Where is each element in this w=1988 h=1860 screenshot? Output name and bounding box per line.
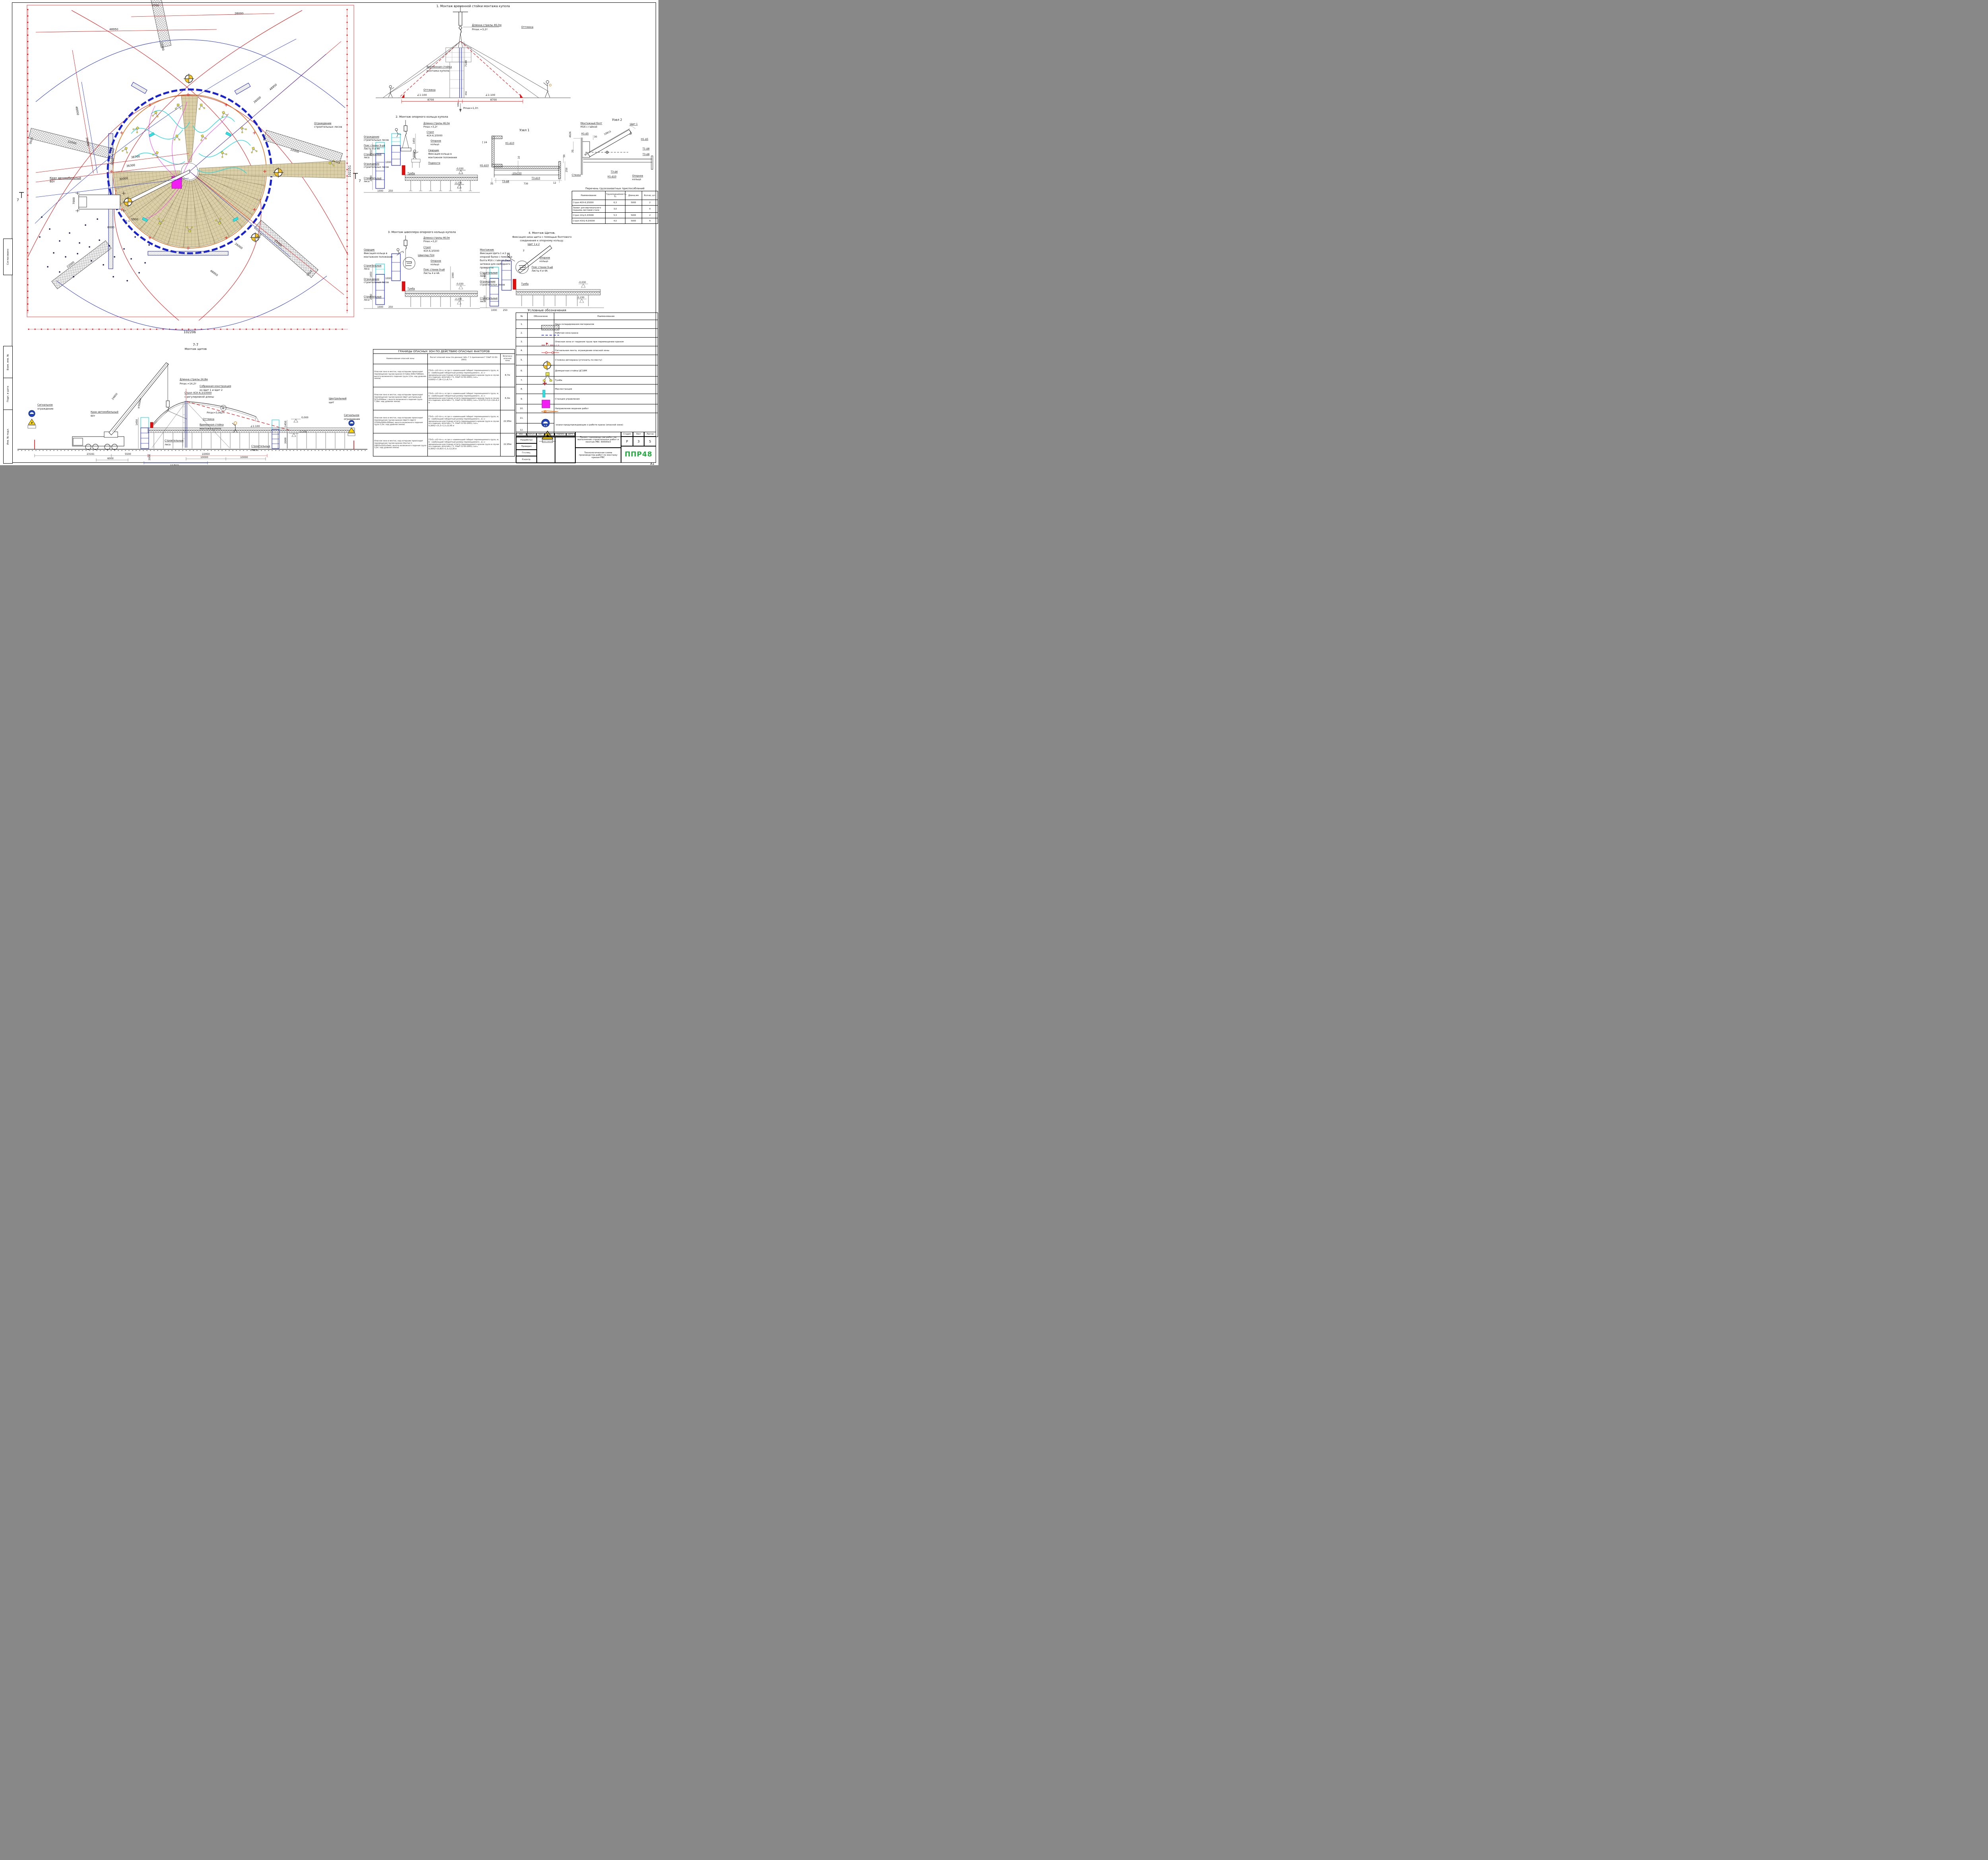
level-0030: -0,030	[456, 168, 464, 170]
weld-t3-8: Т3-Δ8	[502, 180, 509, 183]
company-logo: ППР48	[621, 446, 656, 463]
dim-48950: 48950	[109, 28, 118, 31]
welder-kneeling	[397, 249, 403, 255]
fence-label-2: строительных лесов	[480, 284, 505, 286]
boom-length-label: Длинна стрелы 24,8м	[180, 378, 208, 381]
detail-marker-2: 2	[523, 249, 524, 252]
lesa-label-2: леса	[364, 299, 369, 301]
legend-table: № Обозначене Наименование 1. Зона склади…	[516, 313, 658, 437]
stage1-title: 1. Монтаж временной стойки монтажа купол…	[437, 4, 510, 8]
poyas-label-1: Пояс стенки 9-ый	[423, 268, 445, 271]
signal-label-2: ограждение	[344, 418, 360, 421]
central-shield-2: щит	[329, 401, 334, 404]
legend-row: 2. Рабочая зона крана	[516, 329, 658, 338]
dim-50: 50	[563, 154, 566, 157]
rigging-table: Наименование Грузоподъемность, Тс Длина,…	[572, 191, 658, 224]
crane-work-zone-icon	[541, 333, 560, 337]
stamp-podp: Подп. и дата	[3, 378, 13, 410]
lesa-label-2: леса	[165, 443, 171, 446]
plan-view: 48950 26000 48950 26000 38700 36300 3000…	[12, 2, 362, 341]
fitter-label-5: затяжки для свободного	[480, 263, 511, 266]
legend-row: 5. Стоянка автокрана (уточнить по месту)	[516, 355, 658, 365]
tb-lists-val: 5	[644, 437, 656, 446]
col-qty: Кол-во, шт.	[642, 191, 658, 200]
dim-26000: 26000	[253, 96, 262, 104]
signal-tape-icon	[541, 351, 560, 355]
tumba-label: Тумба	[521, 283, 529, 285]
col-length: Длина,мм	[625, 191, 642, 200]
dim-26000: 26000	[234, 242, 243, 250]
rigging-table-title: Перечень грузозахватных приспособлений	[572, 187, 658, 190]
weld-n1-10: Н1-Δ10	[505, 142, 514, 145]
dim-1450: 1450	[136, 419, 138, 425]
uzel1-drawing	[492, 136, 565, 183]
dim-23191: 23191	[87, 453, 95, 456]
guy-label: Оттяжка	[521, 25, 533, 29]
crane-label: Кран автомобильный	[91, 410, 118, 414]
lesa-label-1: Строительные	[364, 153, 382, 156]
weld-n1-5: Н1-Δ5	[641, 138, 648, 141]
danger-table: Наименование опасной зоны Расчет опасной…	[373, 353, 515, 456]
dim-80: 80*	[584, 151, 589, 156]
ring-label-2: кольцо	[431, 264, 439, 266]
level-2230: -2,230	[454, 182, 462, 184]
dim-1000: 1000	[385, 278, 391, 280]
stage3-title: 3. Монтаж швеллера опорного кольца купол…	[388, 231, 456, 234]
fitter-label-3: опорной балке с помощью	[480, 256, 512, 258]
level-0: 0,000	[301, 416, 309, 419]
lesa-label-1: Строительные	[480, 272, 498, 274]
crane-truck	[72, 363, 169, 450]
section-mark-7: 7	[359, 179, 361, 183]
stage2-drawing	[364, 120, 480, 192]
sling-label-2: с регулировкой длины	[184, 395, 214, 398]
legend-title: Условные обозначения	[516, 309, 658, 312]
dim-6000: 6000	[107, 457, 114, 460]
section77-title: 7-7	[193, 343, 198, 347]
channel-label: Швеллер П24	[418, 254, 435, 257]
dim-250: 250	[565, 167, 568, 172]
stage2-labels: Длинна стрелы 46,0м Pmax.=3,2т Строп 4СК…	[364, 122, 464, 192]
welder-label-1: Сварщик	[364, 249, 375, 251]
assembled-label-2: из Щит 1 и Щит 2	[200, 389, 223, 392]
scaffold-left	[141, 417, 153, 448]
poyas-label-1: Пояс стенки 9-ый	[364, 144, 385, 147]
shield-label: Щит 1 и 2	[528, 243, 540, 246]
lesa-label-1: Строительные	[251, 445, 270, 448]
dim-1450: 1450	[413, 138, 415, 144]
lesa-label-2: леса	[364, 181, 369, 183]
mandatory-sign-icon	[541, 418, 550, 428]
legend-row: 4. Сигнальная лента, ограждение опасной …	[516, 346, 658, 355]
tb-ndok: №док.	[544, 433, 555, 436]
fence-label-2: строительных лесов	[314, 125, 342, 128]
stamp-inv: Инв. № подл.	[3, 410, 13, 464]
stage1-elevation: 1. Монтаж временной стойки монтажа купол…	[368, 3, 579, 115]
tumba-label: Тумба	[407, 173, 415, 175]
dim-1450: 1450	[484, 273, 486, 279]
dim-640: 640	[457, 102, 460, 107]
crane-stand-icon	[541, 360, 553, 371]
dim-102251: 102251	[348, 165, 351, 177]
uzel1-detail: Узел 1 [ 24 Н1-Δ10 10 50 250 -10x150 Т3-…	[480, 126, 569, 185]
slope-label: ∠1:100	[250, 425, 260, 428]
fitter-label-2: Фиксация Щита 1 и 2 на	[480, 252, 510, 255]
danger-col-value: Величина опасной зоны	[500, 354, 514, 364]
signal-label-1: Сигнальное	[344, 414, 359, 417]
ring-label-2: кольцо	[540, 260, 548, 263]
worker-left	[388, 85, 394, 97]
danger-row: Опасная зона в местах, над которыми прои…	[373, 433, 515, 456]
stage2-elevation: 2. Монтаж опорного кольца купола Длинна	[364, 115, 480, 194]
dim-3700: 3700	[152, 4, 159, 7]
danger-col-name: Наименование опасной зоны	[373, 354, 428, 364]
dim-48950: 48950	[210, 269, 219, 277]
bolt-label-2: М16 с гайкой	[580, 126, 597, 128]
guy-label: Оттяжка	[423, 88, 435, 91]
tb-glspec: Гл.спец.	[516, 450, 537, 456]
title-block: Изм. Кол.уч Лист №док. Подпись Дата Разр…	[516, 432, 656, 463]
signal-fence-left	[28, 410, 36, 449]
fitter-label-6: проворота)	[480, 267, 493, 269]
stamp-soglasovano: Согласовано	[3, 239, 13, 275]
boom-length-label: Длинна стрелы 46,0м	[423, 237, 450, 239]
shield-label: Щит 1	[630, 123, 638, 126]
fence-label-1: Ограждение	[364, 278, 379, 281]
lesa-label-1: Строительные	[480, 297, 498, 300]
dim-20: 20	[571, 149, 574, 153]
dim-1450: 1450	[370, 272, 373, 278]
fitter-label-1: Монтажник	[480, 249, 494, 251]
section77-labels: Сигнальное ограждение Сигнальное огражде…	[37, 378, 360, 465]
uzel2-detail: Узел 2 Монтажный болт М16 с гайкой Щит 1…	[569, 115, 658, 185]
fence-label-2: строительных лесов	[364, 139, 389, 142]
table-row: Строп УСК2-4,0/50004,050004	[572, 218, 658, 224]
pmax-label: Pmax.=3,2т	[423, 126, 438, 128]
rigging-table-block: Перечень грузозахватных приспособлений Н…	[572, 187, 658, 224]
tb-data: Дата	[566, 433, 575, 436]
danger-zone-icon	[541, 342, 560, 347]
legend-block: Условные обозначения № Обозначене Наимен…	[516, 309, 658, 437]
dim-24800: 24800	[111, 392, 118, 400]
level-2230: -2,230	[299, 431, 307, 433]
fence-label-1: Ограждение	[480, 281, 495, 283]
stand-label-2: монтажа купола	[427, 69, 449, 72]
stage1-labels: Длинна стрелы 46,0м Pmax.=3,2т Оттяжка О…	[417, 23, 533, 110]
dim-730: 730	[524, 183, 528, 185]
dim-250: 250	[388, 306, 393, 309]
detail-marker-1: 1	[402, 250, 404, 254]
legend-row: 6. Домкратная стойка ЦС18М	[516, 365, 658, 377]
stamp-label: Подп. и дата	[7, 386, 10, 402]
crane-label: Кран автомобильный	[50, 177, 81, 180]
work-direction-icon	[541, 409, 560, 414]
legend-col-symbol: Обозначене	[528, 313, 554, 320]
uzel1-title: Узел 1	[519, 128, 529, 132]
lesa-label-1: Строительные	[364, 296, 382, 298]
guy-label: Оттяжка	[203, 418, 214, 421]
danger-table-title: ГРАНИЦЫ ОПАСНЫХ ЗОН ПО ДЕЙСТВИЮ ОПАСНЫХ …	[373, 349, 515, 353]
tb-list-h: Лист	[633, 432, 644, 437]
welder-label-3: монтажном положении	[364, 256, 392, 258]
tb-razrabotal: Разработал	[516, 437, 537, 443]
section77-subtitle: Монтаж щитов	[184, 348, 206, 351]
dim-7180: 7180	[464, 60, 468, 67]
dim-1990: 1990	[452, 272, 454, 278]
fence-label-2: строительных лесов	[364, 166, 389, 169]
detail-marker-b: В	[222, 407, 224, 410]
dim-48950: 48950	[75, 106, 80, 115]
pmax-label: Pmax.=14,2т	[180, 382, 196, 385]
dim-2000: 2000	[148, 454, 151, 460]
weld-t3-10: Т3-Δ10	[531, 177, 540, 180]
tb-stage-h: Стадия	[621, 432, 633, 437]
signal-label-1: Сигнальное	[37, 404, 53, 406]
fence-label-2: строительных лесов	[364, 282, 389, 284]
pmax-label: Pmax.=3,2т	[423, 241, 438, 243]
ring-label-1: Опорное	[431, 140, 441, 142]
lesa-label-1: Строительные	[364, 265, 382, 267]
dim-8700: 8700	[427, 98, 434, 101]
uzel2-title: Узел 2	[612, 118, 622, 122]
dim-2000: 2000	[370, 175, 373, 181]
stage3-elevation: 3. Монтаж швеллера опорного кольца купол…	[364, 230, 480, 316]
channel-24-label: [ 24	[482, 141, 487, 144]
tb-nkontr: Н.контр.	[516, 456, 537, 463]
signal-label-2: ограждение	[37, 408, 53, 410]
slope-label: ∠1:100	[485, 93, 495, 97]
weld-n1-5: Н1-Δ5	[581, 132, 589, 135]
stage4-title-2: Фиксация низа щита с помощью болтового	[512, 235, 571, 239]
ring-label-2: кольцо	[632, 178, 641, 181]
dim-10000: 10000	[240, 456, 248, 459]
dim-10: 10	[518, 156, 520, 159]
dim-26000: 26000	[235, 12, 243, 15]
weld-t3-6: Т3-Δ6	[610, 171, 618, 173]
poyas-label-2: Листы 4 и 4А	[532, 270, 547, 272]
weld-n1-10: Н1-Δ10	[608, 175, 616, 178]
legend-row: 3. Опасная зона от падения груза при пер…	[516, 338, 658, 346]
storage-zone-icon	[541, 324, 560, 331]
lesa-label-2: леса	[364, 268, 369, 270]
level-0030: -0,030	[456, 283, 464, 285]
dim-12: 12	[553, 182, 556, 184]
stage4-title-1: 4. Монтаж Щитов.	[528, 231, 555, 235]
danger-row: Опасная зона в местах, над которыми прои…	[373, 387, 515, 410]
stamp-vzam: Взам. инв. №	[3, 346, 13, 379]
dim-6000: 6000	[107, 226, 115, 229]
dim-2000: 2000	[484, 295, 486, 301]
dim-2000: 2000	[413, 151, 415, 157]
pmax-ground-label: Pmax=1,0т.	[463, 107, 479, 110]
tb-sheet-title: Технологическая схема производства работ…	[575, 448, 621, 463]
legend-col-name: Наименование	[554, 313, 658, 320]
danger-table-block: ГРАНИЦЫ ОПАСНЫХ ЗОН ПО ДЕЙСТВИЮ ОПАСНЫХ …	[373, 349, 515, 456]
dim-35: 35	[490, 183, 493, 185]
weld-t1-8: Т1-Δ8	[642, 148, 650, 150]
level-0030: -0,030	[579, 282, 586, 284]
dim-102206: 102206	[184, 330, 196, 334]
tb-list-val: 3	[633, 437, 644, 446]
dim-2000: 2000	[370, 294, 373, 300]
tb-lists-h: Листов	[644, 432, 656, 437]
sling-label-2: 4СК-6,3/5000	[427, 135, 443, 137]
stage4-elevation: 4. Монтаж Щитов. Фиксация низа щита с по…	[480, 231, 604, 316]
danger-row: Опасная зона в местах, над которыми прои…	[373, 364, 515, 387]
tb-podpis: Подпись	[555, 433, 567, 436]
level-2230: -2,230	[454, 298, 462, 301]
dim-5500: 5500	[131, 218, 138, 221]
dim-5500: 5500	[125, 453, 131, 456]
tb-doc-title: Проект производства работ на выполнение …	[575, 432, 621, 448]
welder-label-2: Фиксация кольца в	[428, 153, 452, 155]
plate-label: -10x150	[512, 172, 522, 175]
col-capacity: Грузоподъемность, Тс	[605, 191, 625, 200]
dim-1450: 1450	[370, 150, 373, 156]
stand-label-1: Временная стойка	[427, 65, 452, 68]
dim-22950: 22950	[202, 453, 210, 456]
lesa-label-2: леса	[251, 449, 257, 452]
welder-label-1: Сварщик	[428, 149, 439, 152]
control-station-icon	[541, 399, 551, 409]
stamp-label: Взам. инв. №	[7, 354, 10, 371]
dim-36300: 36300	[126, 163, 135, 168]
tb-izm: Изм.	[516, 433, 526, 436]
ring-label-1: Опорное	[632, 175, 643, 177]
danger-col-calc: Расчет опасной зоны (по данным табл. Г.1…	[427, 354, 500, 364]
legend-row: 9. Станция управления	[516, 394, 658, 404]
dim-10815: 10815	[604, 130, 612, 136]
ring-label-1: Опорное	[431, 260, 441, 262]
tb-stage-val: Р	[621, 437, 633, 446]
pmax-label: Pmax.=3,2т	[472, 28, 488, 31]
lesa-label-2: леса	[364, 157, 369, 159]
tumba-icon	[541, 381, 549, 386]
crane-capacity: 60т	[91, 415, 95, 417]
bolt-label-1: Монтажный болт	[580, 122, 602, 125]
ring-label-2: кольцо	[431, 144, 439, 146]
signal-fence-right	[348, 420, 355, 449]
dim-1450: 1450	[284, 421, 287, 427]
table-row: Захват для вертикального подъема листово…	[572, 206, 658, 213]
fence-label-1: Ограждение	[364, 163, 379, 165]
dim-1000: 1000	[377, 306, 383, 309]
legend-row: 11. -знаки предупреждающие о работе кран…	[516, 413, 658, 423]
fence-label-1: Ограждение	[314, 122, 331, 125]
dim-2000: 2000	[284, 437, 287, 444]
stand-label-1: Временная стойка	[200, 423, 224, 426]
dim-8700: 8700	[490, 98, 497, 101]
danger-row: Опасная зона в местах, над которыми прои…	[373, 410, 515, 433]
poyas-label-2: Листы 4 и 4А	[364, 148, 380, 150]
dim-10000: 10000	[200, 456, 208, 459]
section-mark-7: 7	[17, 198, 19, 202]
dim-7000: 7000	[72, 197, 76, 204]
tb-koluch: Кол.уч	[526, 433, 537, 436]
dim-456: 456	[465, 91, 468, 95]
sling-label-1: Строп	[423, 247, 431, 249]
legend-row: 8. Маслостанция	[516, 384, 658, 394]
podmosti-label: Подмости	[428, 162, 440, 165]
col-name: Наименование	[572, 191, 606, 200]
dim-30: 30	[594, 136, 597, 138]
dim-48950: 48950	[269, 83, 278, 91]
drawing-sheet: Согласовано Взам. инв. № Подп. и дата Ин…	[0, 0, 658, 465]
dim-250: 250	[503, 309, 507, 312]
dim-1000: 1000	[491, 309, 497, 312]
dim-1000: 1000	[385, 161, 391, 164]
dim-250: 250	[388, 190, 393, 192]
dim-1000: 1000	[377, 190, 383, 192]
level-2230: -2,230	[577, 297, 584, 299]
stand-label-2: монтажа купола	[200, 427, 221, 430]
crane-capacity: 60т	[50, 180, 55, 183]
welder-label-3: монтажном положении	[428, 157, 457, 159]
stage3-labels: Длинна стрелы 46,0м Pmax.=3,2т Строп 4СК…	[364, 237, 464, 309]
boom-length-label: Длинна стрелы 46,0м	[472, 23, 501, 27]
roof-panels	[114, 96, 345, 247]
poyas-label-1: Пояс стенки 9-ый	[532, 266, 553, 269]
legend-col-num: №	[516, 313, 528, 320]
assembled-label-1: Собранная конструкция	[200, 384, 231, 388]
ring-label-1: Опорное	[540, 257, 550, 259]
dim-38700: 38700	[131, 155, 140, 159]
lesa-label-1: Строительные	[165, 439, 184, 442]
fitter-label-4: болта М16 с гайкой (без	[480, 259, 509, 262]
poyas-label-2: Листы 4 и 4А	[423, 272, 439, 275]
welder-label-2: Фиксация кольца в	[364, 252, 388, 255]
weld-t3-8: Т3-Δ8	[642, 153, 650, 156]
station-label: Ст.1	[124, 219, 130, 223]
legend-row: 1. Зона складирования материалов	[516, 320, 658, 329]
wall-label: Стенка	[572, 174, 581, 177]
stamp-label: Инв. № подл.	[7, 428, 10, 445]
stage1-drawing	[376, 6, 571, 112]
stamp-label: Согласовано	[7, 249, 10, 265]
table-row: Строп 1СЦ-5,3/50005,350002	[572, 213, 658, 218]
tb-proveril: Проверил	[516, 443, 537, 450]
dim-4926: 4926	[569, 132, 572, 138]
weld-n1-10: Н1-Δ10	[480, 164, 489, 167]
legend-row: 7. Тумба	[516, 377, 658, 384]
boom-length-label: Длинна стрелы 46,0м	[423, 122, 450, 125]
tb-list: Лист	[536, 433, 544, 436]
uzel2-labels: Монтажный болт М16 с гайкой Щит 1 4926 Н…	[569, 122, 650, 181]
stage2-title: 2. Монтаж опорного кольца купола	[396, 115, 448, 118]
sling-label-2: 4СК-6,3/5000	[423, 250, 439, 252]
sling-label-1: Строп	[427, 131, 434, 134]
tumba-label: Тумба	[407, 288, 415, 290]
format-label: А1	[650, 462, 654, 465]
table-row: Строп 4СК-6,3/50006,350002	[572, 200, 658, 206]
lesa-label-1: Строительные	[364, 177, 382, 180]
central-shield-1: Центральный	[329, 397, 347, 400]
pmax-load-label: Pmax=3,062т.	[207, 412, 225, 414]
slope-label: ∠1:100	[417, 93, 427, 97]
fence-label-1: Ограждение	[364, 136, 379, 138]
section-7-7: 7-7 Монтаж щитов	[13, 341, 371, 464]
pile-dots	[39, 216, 150, 282]
dim-11763: 11763	[170, 464, 179, 465]
stage4-title-3: соединения к опорному кольцу.	[520, 239, 564, 242]
legend-row: 10. Направление ведения работ	[516, 404, 658, 413]
oil-station-icon	[541, 389, 547, 398]
sling-label-1: Строп 4СК-6,3/10000	[184, 392, 212, 394]
